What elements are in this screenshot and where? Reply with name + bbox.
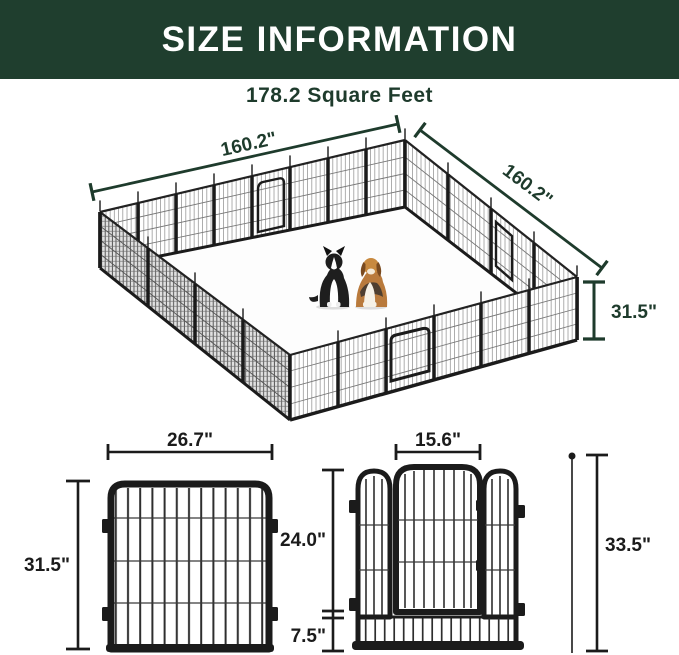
size-diagram-canvas: 160.2" 160.2" 31.5" 26.7" 31.5" [0,0,679,655]
dimension-label-door-width: 15.6" [415,430,461,451]
panel-hinge-top-left [102,519,110,533]
dimension-label-total-height: 33.5" [605,535,651,556]
door-panel-diagram: 15.6" 24.0" 7.5" 33.5" [280,430,651,653]
door-panel-hinge-top-left [349,500,357,513]
door-panel-right-section [484,471,516,617]
panel-hinge-bottom-left [102,607,110,621]
door-panel-left-section [358,471,390,617]
dimension-label-pen-height: 31.5" [611,302,657,323]
dimension-label-side-right: 160.2" [498,160,556,211]
door-latch-bottom [476,560,484,571]
door-panel-bottom-band [352,617,524,650]
dimension-label-door-height: 24.0" [280,530,326,551]
door-latch-top [476,500,484,511]
playpen-isometric-diagram: 160.2" 160.2" 31.5" [90,115,657,420]
dimension-label-panel-height: 31.5" [24,555,70,576]
door-panel-hinge-bottom-left [349,598,357,611]
dimension-label-panel-width: 26.7" [167,430,213,451]
dimension-label-bottom-height: 7.5" [291,626,326,647]
door-panel-hinge-bottom-right [517,603,525,616]
ground-stake-icon [569,453,576,654]
single-panel-diagram: 26.7" 31.5" [24,430,278,652]
dimension-pen-height [583,282,605,339]
door-panel-door [396,467,484,612]
panel-hinge-top-right [270,519,278,533]
panel-hinge-bottom-right [270,607,278,621]
door-panel-hinge-top-right [517,505,525,518]
dimension-door-height [322,470,344,651]
